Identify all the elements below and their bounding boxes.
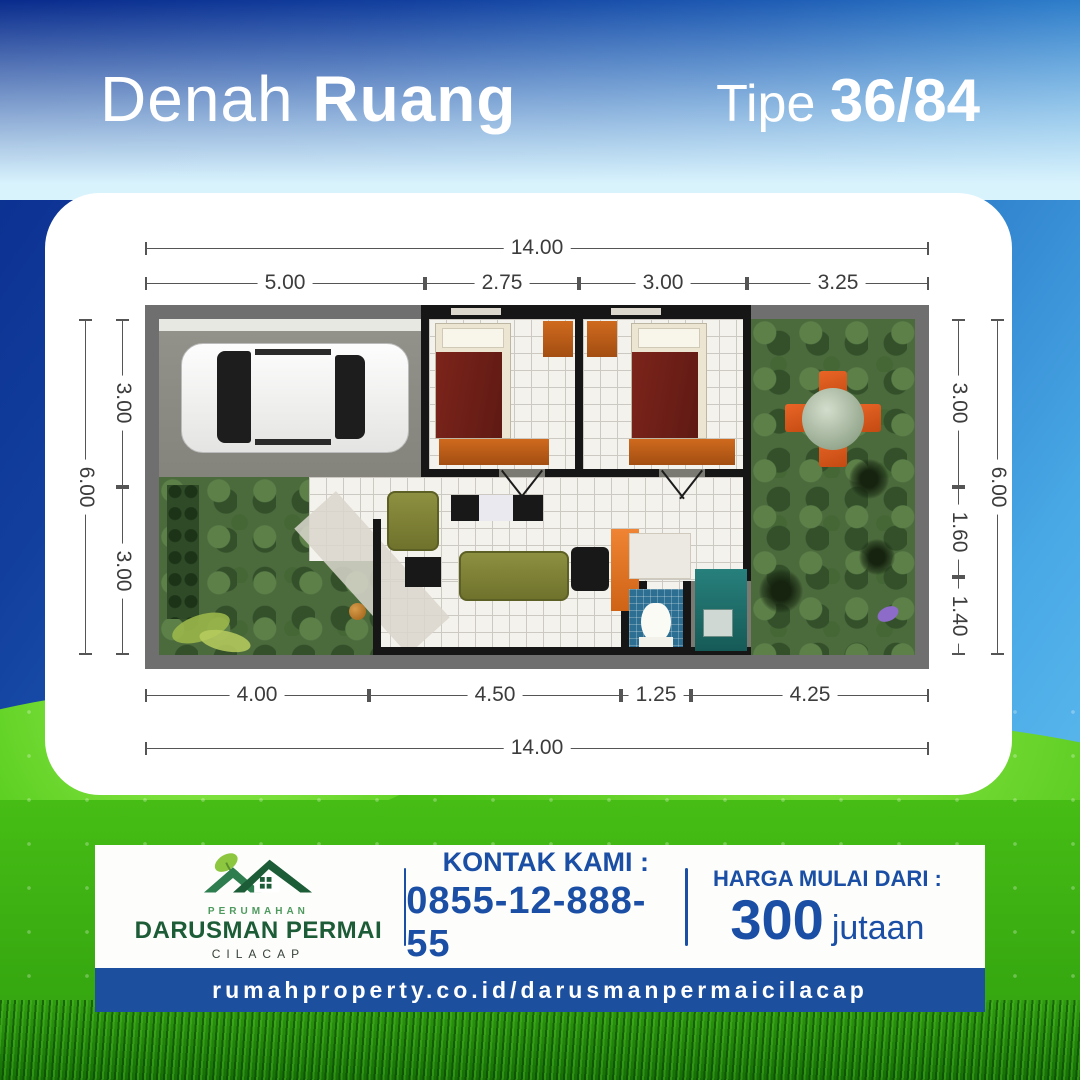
floor-plan-card: 14.00 5.00 2.75 3.00 3.25 4.00 4.50 1.25… — [45, 193, 1012, 795]
dim-right-seg3: 1.40 — [958, 577, 959, 655]
dim-label: 14.00 — [504, 736, 571, 760]
dim-left-seg1: 3.00 — [122, 319, 123, 487]
spiky-plant-1 — [849, 459, 889, 499]
logo-city: CILACAP — [212, 947, 305, 961]
dim-label: 3.00 — [111, 544, 135, 599]
contact-phone: 0855-12-888-55 — [406, 880, 685, 966]
dresser-2 — [629, 439, 735, 465]
window-bedroom-1 — [451, 308, 501, 315]
wall-bedroom1-front — [421, 469, 499, 477]
dim-label: 3.00 — [636, 271, 691, 295]
wall-bedroom2-garden — [743, 319, 751, 469]
grass-foreground — [0, 1000, 1080, 1080]
house-type: Tipe 36/84 — [716, 66, 980, 135]
footer-card: PERUMAHAN DARUSMAN PERMAI CILACAP KONTAK… — [95, 845, 985, 968]
dim-label: 4.50 — [468, 683, 523, 707]
url-bar: rumahproperty.co.id/darusmanpermaicilaca… — [95, 968, 985, 1012]
dim-bottom-seg4: 4.25 — [691, 695, 929, 696]
dim-bottom-total: 14.00 — [145, 748, 929, 749]
dim-label: 5.00 — [258, 271, 313, 295]
door-bedroom-2 — [659, 471, 705, 501]
dim-top-seg4: 3.25 — [747, 283, 929, 284]
kitchen-counter — [629, 533, 691, 579]
dim-label: 1.40 — [947, 589, 971, 644]
wall-living-left — [373, 519, 381, 655]
car-rear-window — [335, 355, 365, 439]
dim-top-seg2: 2.75 — [425, 283, 579, 284]
bed-2 — [631, 323, 707, 439]
nightstand-2 — [587, 321, 617, 357]
toilet — [641, 603, 671, 641]
floor-plan — [145, 305, 929, 669]
window-bedroom-2 — [611, 308, 661, 315]
dim-label: 4.25 — [783, 683, 838, 707]
wall-bedroom1-bedroom2 — [575, 319, 583, 469]
poster: Denah Ruang Tipe 36/84 14.00 5.00 2.75 3… — [0, 0, 1080, 1080]
dresser-1 — [439, 439, 549, 465]
dim-label: 3.00 — [947, 376, 971, 431]
dim-label: 1.25 — [629, 683, 684, 707]
desk-chair — [571, 547, 609, 591]
dim-top-total: 14.00 — [145, 248, 929, 249]
hedge — [167, 485, 199, 619]
wall-between-doors — [545, 469, 659, 477]
wall-bedroom2-front — [705, 469, 751, 477]
title-bold: Ruang — [312, 63, 516, 135]
dim-right-total: 6.00 — [997, 319, 998, 655]
price-line: 300 jutaan — [730, 892, 924, 948]
coffee-table — [405, 557, 441, 587]
wall-bath-right — [683, 581, 691, 651]
blanket — [436, 352, 502, 438]
dim-right-seg2: 1.60 — [958, 487, 959, 577]
dim-label: 2.75 — [475, 271, 530, 295]
dim-label: 3.25 — [811, 271, 866, 295]
dim-label: 3.00 — [111, 376, 135, 431]
spiky-plant-3 — [859, 539, 895, 575]
page-title: Denah Ruang — [100, 62, 516, 136]
dim-bottom-seg3: 1.25 — [621, 695, 691, 696]
type-value: 36/84 — [830, 67, 980, 134]
dim-label: 1.60 — [947, 505, 971, 560]
spiky-plant-2 — [759, 569, 803, 613]
type-label: Tipe — [716, 75, 815, 133]
carport-canopy — [159, 319, 425, 331]
dim-bottom-seg2: 4.50 — [369, 695, 621, 696]
dim-top-seg3: 3.00 — [579, 283, 747, 284]
pillow — [442, 328, 504, 348]
website-url: rumahproperty.co.id/darusmanpermaicilaca… — [212, 977, 868, 1004]
car-windshield — [217, 351, 251, 443]
dining-table — [802, 388, 864, 450]
plant-pot — [349, 603, 366, 620]
dim-label: 6.00 — [74, 460, 98, 515]
logo-tagline: PERUMAHAN — [208, 906, 309, 917]
dim-label: 6.00 — [986, 460, 1010, 515]
armchair — [387, 491, 439, 551]
title-regular: Denah — [100, 63, 294, 135]
car-side-window-bottom — [255, 439, 331, 445]
header: Denah Ruang Tipe 36/84 — [100, 62, 980, 136]
logo: PERUMAHAN DARUSMAN PERMAI CILACAP — [113, 852, 404, 961]
dim-left-total: 6.00 — [85, 319, 86, 655]
dim-left-seg2: 3.00 — [122, 487, 123, 655]
car-side-window-top — [255, 349, 331, 355]
wall-carport-bedroom1 — [421, 319, 429, 469]
logo-name: DARUSMAN PERMAI — [135, 917, 383, 945]
pillow — [638, 328, 700, 348]
washing-machine — [703, 609, 733, 637]
bed-1 — [435, 323, 511, 439]
price-amount: 300 — [730, 892, 823, 948]
dim-label: 14.00 — [504, 236, 571, 260]
contact-label: KONTAK KAMI : — [443, 847, 649, 878]
blanket — [632, 352, 698, 438]
wall-kitchen-right — [743, 477, 751, 581]
price-section: HARGA MULAI DARI : 300 jutaan — [688, 866, 967, 948]
toilet-base — [639, 637, 673, 647]
sofa — [459, 551, 569, 601]
dim-bottom-seg1: 4.00 — [145, 695, 369, 696]
dim-top-seg1: 5.00 — [145, 283, 425, 284]
house-logo-icon — [199, 852, 317, 904]
contact-section: KONTAK KAMI : 0855-12-888-55 — [406, 847, 685, 966]
tv-screen — [479, 495, 513, 521]
dim-right-seg1: 3.00 — [958, 319, 959, 487]
nightstand-1 — [543, 321, 573, 357]
price-suffix: jutaan — [832, 909, 925, 948]
car — [181, 343, 409, 453]
dim-label: 4.00 — [230, 683, 285, 707]
